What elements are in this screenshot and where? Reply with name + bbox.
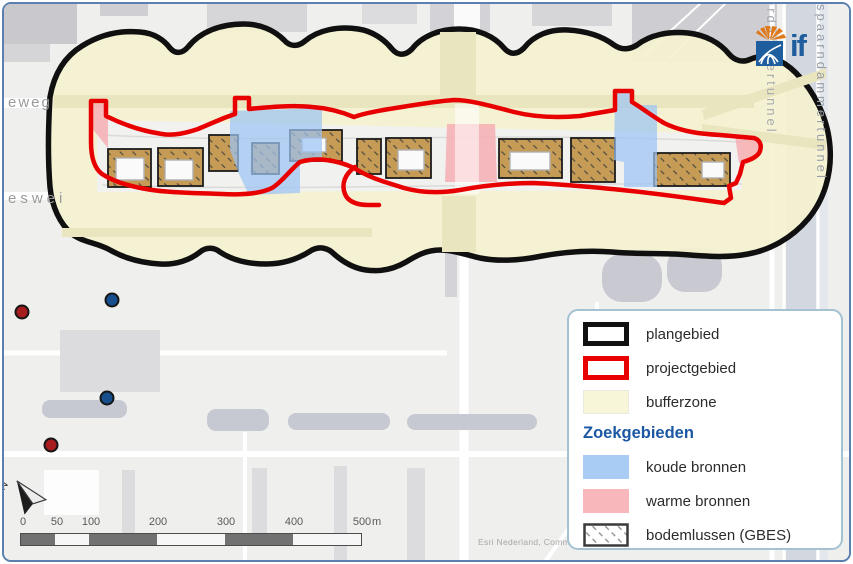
scale-tick: 500: [353, 516, 371, 528]
scale-tick: 0: [20, 516, 26, 528]
map-screenshot: N eweg eswei erdammertunnel spaarndammer…: [0, 0, 853, 564]
legend-header: Zoekgebieden: [583, 424, 827, 443]
attribution: Esri Nederland, Commu: [478, 537, 575, 547]
well-marker-warm: [45, 439, 58, 452]
warme-bronnen-swatch: [583, 489, 629, 513]
map-canvas[interactable]: N eweg eswei erdammertunnel spaarndammer…: [2, 2, 851, 562]
legend-label: projectgebied: [646, 360, 736, 377]
koude-bronnen-swatch: [583, 455, 629, 479]
legend-label: bufferzone: [646, 394, 717, 411]
scale-bar-segments: [20, 533, 362, 546]
legend-row-bufferzone: bufferzone: [583, 390, 827, 414]
legend-row-projectgebied: projectgebied: [583, 356, 827, 380]
bodemlussen-swatch: [583, 523, 629, 547]
center-road-overlay: [455, 104, 479, 194]
scale-tick: 400: [285, 516, 303, 528]
scale-bar: 0 50 100 200 300 400 500 m: [20, 516, 400, 550]
bufferzone-swatch: [583, 390, 629, 414]
well-marker-koud: [101, 392, 114, 405]
if-technology-logo: if: [754, 26, 824, 70]
legend-label: plangebied: [646, 326, 719, 343]
scale-unit: m: [372, 516, 381, 528]
legend-label: warme bronnen: [646, 493, 750, 510]
legend-row-bodemlussen: bodemlussen (GBES): [583, 523, 827, 547]
legend-row-warme-bronnen: warme bronnen: [583, 489, 827, 513]
legend-label: bodemlussen (GBES): [646, 527, 791, 544]
logo-mark: [754, 26, 824, 70]
scale-tick: 300: [217, 516, 235, 528]
well-marker-koud: [106, 294, 119, 307]
plangebied-swatch: [583, 322, 629, 346]
scale-tick: 100: [82, 516, 100, 528]
scale-tick: 50: [51, 516, 63, 528]
scale-tick: 200: [149, 516, 167, 528]
legend-row-plangebied: plangebied: [583, 322, 827, 346]
well-marker-warm: [16, 306, 29, 319]
legend-label: koude bronnen: [646, 459, 746, 476]
logo-text: if: [790, 28, 805, 64]
legend-row-koude-bronnen: koude bronnen: [583, 455, 827, 479]
legend: plangebied projectgebied bufferzone Zoek…: [567, 309, 843, 550]
projectgebied-swatch: [583, 356, 629, 380]
